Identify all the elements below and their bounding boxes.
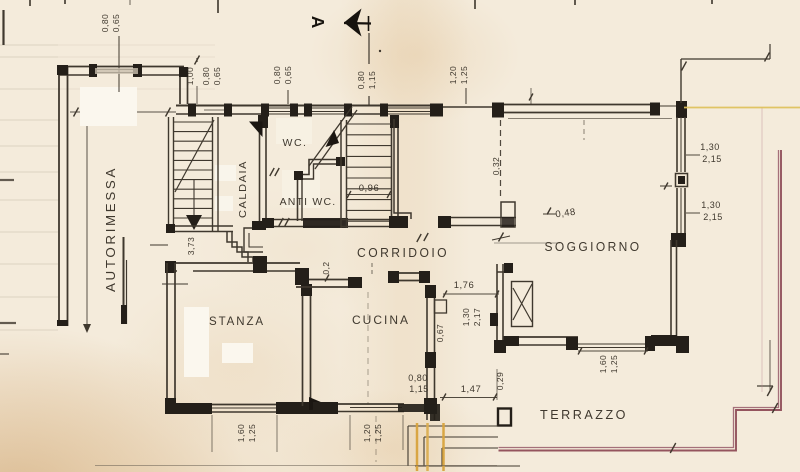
svg-text:1,20: 1,20 [362,424,372,443]
svg-text:0,65: 0,65 [212,67,222,86]
svg-text:A: A [308,16,328,29]
svg-text:0,80: 0,80 [201,67,211,86]
svg-text:AUTORIMESSA: AUTORIMESSA [104,166,118,292]
svg-text:0,80: 0,80 [100,14,110,33]
svg-text:1,47: 1,47 [461,384,482,395]
svg-text:TERRAZZO: TERRAZZO [540,408,628,422]
svg-text:1,30: 1,30 [701,200,721,210]
svg-text:1,15: 1,15 [409,384,429,394]
svg-text:1,30: 1,30 [461,308,471,327]
svg-text:1,25: 1,25 [459,66,469,85]
svg-text:CALDAIA: CALDAIA [237,160,249,218]
svg-text:0,65: 0,65 [283,66,293,85]
svg-text:SOGGIORNO: SOGGIORNO [545,240,642,254]
svg-text:1,25: 1,25 [373,424,383,443]
svg-text:1,60: 1,60 [236,424,246,443]
svg-text:2,15: 2,15 [703,212,723,222]
svg-text:0,65: 0,65 [111,14,121,33]
svg-text:CORRIDOIO: CORRIDOIO [357,246,449,260]
svg-text:0,80: 0,80 [408,373,428,383]
svg-text:1,30: 1,30 [700,142,720,152]
svg-text:ANTI WC.: ANTI WC. [280,196,337,208]
svg-text:0,80: 0,80 [272,66,282,85]
svg-text:1,15: 1,15 [367,71,377,90]
svg-text:2,17: 2,17 [472,308,482,327]
svg-text:1,60: 1,60 [598,355,608,374]
svg-text:CUCINA: CUCINA [352,313,410,327]
svg-text:2,15: 2,15 [702,154,722,164]
svg-text:1,25: 1,25 [609,355,619,374]
svg-text:0,2: 0,2 [321,261,331,274]
svg-text:0,96: 0,96 [359,183,380,194]
svg-text:0,32: 0,32 [491,157,501,176]
svg-text:STANZA: STANZA [209,314,265,328]
svg-text:0,29: 0,29 [495,372,505,391]
svg-text:1,76: 1,76 [454,280,475,291]
svg-text:1,25: 1,25 [247,424,257,443]
svg-text:0,80: 0,80 [356,71,366,90]
svg-text:WC.: WC. [283,137,308,149]
svg-text:3,73: 3,73 [186,237,196,256]
svg-text:1,20: 1,20 [448,66,458,85]
svg-text:0,67: 0,67 [435,324,445,343]
